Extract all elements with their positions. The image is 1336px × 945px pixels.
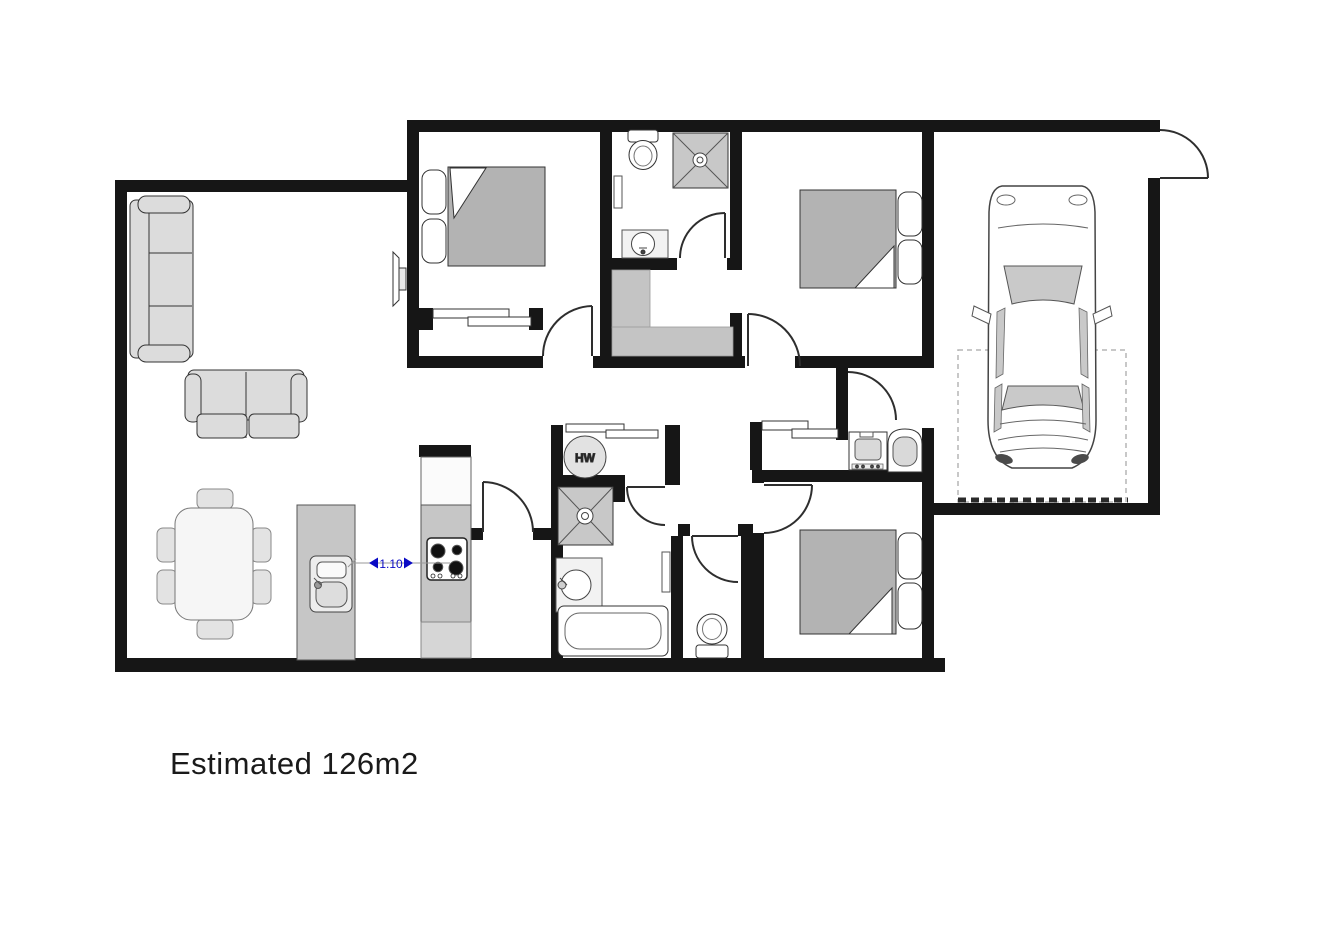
wall-segment: [593, 356, 745, 368]
wall-segment: [471, 528, 483, 540]
wall-segment: [671, 536, 683, 660]
wall-segment: [407, 356, 543, 368]
floor-plan-svg: HW: [0, 0, 1336, 945]
towel-rail-icon: [614, 176, 622, 208]
toilet: [628, 130, 658, 170]
towel-rail-icon: [662, 552, 670, 592]
dining-chair: [197, 489, 233, 509]
wall-segment: [600, 132, 612, 368]
wall-segment: [795, 356, 934, 368]
wall-segment: [613, 475, 625, 502]
wall-segment: [115, 180, 419, 192]
wall-segment: [922, 428, 934, 672]
vanity-sink: [622, 230, 668, 258]
shower: [673, 133, 728, 188]
wall-segment: [533, 528, 553, 540]
wall-segment: [934, 503, 1160, 515]
side-window: [994, 384, 1002, 432]
stove: [427, 538, 467, 580]
pillow: [898, 583, 922, 629]
hot-water-label: HW: [575, 451, 596, 465]
dining-table: [175, 508, 253, 620]
wall-segment: [407, 120, 419, 368]
sofa-3seat: [130, 196, 193, 362]
vanity-sink: [556, 558, 602, 612]
area-label: Estimated 126m2: [170, 746, 419, 781]
kitchen-cabinet: [421, 622, 471, 658]
wall-segment: [419, 308, 433, 330]
sofa-2seat: [185, 370, 307, 438]
wall-segment: [419, 445, 471, 457]
dimension-label: 1.10: [379, 557, 403, 571]
pillow: [422, 170, 446, 214]
dining-chair: [157, 570, 177, 604]
bathtub: [558, 606, 668, 656]
wall-segment: [115, 658, 945, 672]
dining-chair: [197, 619, 233, 639]
wall-segment: [665, 425, 680, 485]
side-window: [1082, 384, 1090, 432]
pillow: [898, 533, 922, 579]
wall-segment: [407, 120, 1160, 132]
rear-window: [1004, 266, 1082, 304]
wall-segment: [678, 524, 690, 536]
dining-chair: [251, 570, 271, 604]
pillow: [422, 219, 446, 263]
wall-segment: [115, 180, 127, 672]
wc: [696, 614, 728, 658]
wall-segment: [1148, 120, 1160, 130]
pillow: [898, 240, 922, 284]
washing-machine: [849, 432, 887, 470]
wall-segment: [727, 258, 742, 270]
wall-segment: [741, 524, 753, 660]
wall-segment: [750, 422, 762, 470]
floor-plan-page: HW: [0, 0, 1336, 945]
wall-segment: [730, 132, 742, 270]
toilet-tank: [696, 645, 728, 658]
car: [972, 186, 1112, 468]
laundry-tub: [888, 429, 922, 472]
pillow: [898, 192, 922, 236]
wall-segment: [752, 533, 764, 660]
wall-segment: [1148, 178, 1160, 515]
wall-segment: [922, 120, 934, 368]
dining-chair: [157, 528, 177, 562]
fridge: [421, 457, 471, 505]
dining-chair: [251, 528, 271, 562]
island-sink: [310, 556, 352, 612]
wall-segment: [600, 258, 677, 270]
shower: [558, 487, 613, 545]
